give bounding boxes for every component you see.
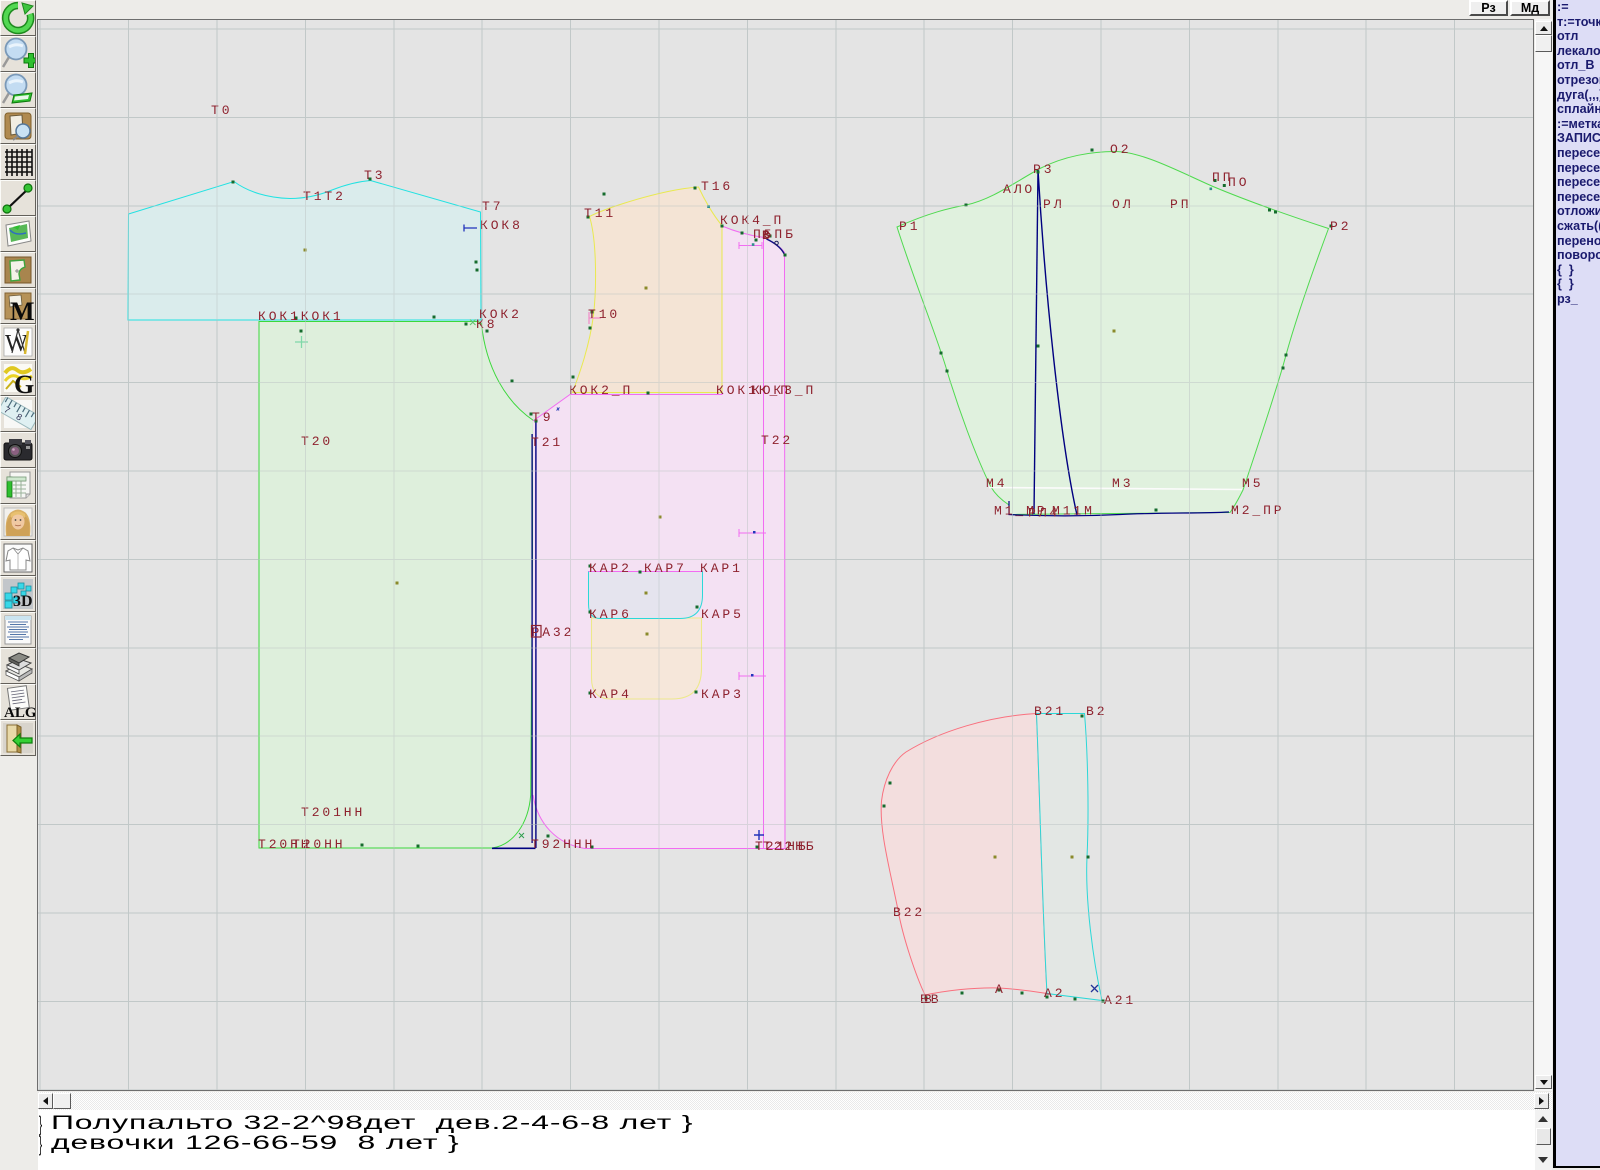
- svg-text:Т201НН: Т201НН: [301, 805, 365, 820]
- svg-text:Т1Т2: Т1Т2: [303, 189, 346, 204]
- svg-text:КАР3: КАР3: [701, 687, 744, 702]
- svg-text:ПО: ПО: [1228, 175, 1249, 190]
- svg-text:3D: 3D: [13, 593, 33, 610]
- svg-text:M: M: [10, 297, 35, 323]
- svg-text:А21: А21: [1104, 993, 1136, 1008]
- svg-text:РА32: РА32: [532, 625, 575, 640]
- svg-text:Р2: Р2: [1330, 219, 1351, 234]
- svg-text:В: В: [762, 228, 773, 243]
- svg-text:Т16: Т16: [701, 179, 733, 194]
- svg-text:Р3: Р3: [1033, 162, 1054, 177]
- svg-text:Т11: Т11: [584, 206, 616, 221]
- svg-text:КОК3_П: КОК3_П: [752, 383, 816, 398]
- svg-text:Т21: Т21: [531, 435, 563, 450]
- svg-text:КАР2: КАР2: [589, 561, 632, 576]
- svg-text:РП: РП: [1170, 197, 1191, 212]
- svg-text:Т92ННН: Т92ННН: [531, 837, 595, 852]
- svg-text:Т7: Т7: [482, 199, 503, 214]
- svg-text:О2: О2: [1110, 142, 1131, 157]
- svg-text:КОК8: КОК8: [480, 218, 523, 233]
- svg-text:П5ПБ: П5ПБ: [753, 227, 796, 242]
- svg-text:М5: М5: [1242, 476, 1263, 491]
- svg-text:А2: А2: [1044, 986, 1065, 1001]
- svg-text:Т22: Т22: [761, 433, 793, 448]
- svg-text:КАР4: КАР4: [589, 687, 632, 702]
- svg-text:КАР5: КАР5: [701, 607, 744, 622]
- svg-text:М3: М3: [1112, 476, 1133, 491]
- svg-text:К8: К8: [476, 317, 497, 332]
- svg-text:В21: В21: [1034, 704, 1066, 719]
- svg-text:КАР7: КАР7: [644, 561, 687, 576]
- svg-text:КОК4_П: КОК4_П: [720, 213, 784, 228]
- svg-text:Т9: Т9: [532, 410, 553, 425]
- svg-text:Т0: Т0: [211, 103, 232, 118]
- svg-text:В2: В2: [1086, 704, 1107, 719]
- svg-text:Р1: Р1: [899, 219, 920, 234]
- svg-text:G: G: [14, 370, 34, 395]
- svg-text:Т3: Т3: [364, 168, 385, 183]
- svg-text:КАР1: КАР1: [700, 561, 743, 576]
- svg-text:В: В: [924, 992, 935, 1007]
- svg-text:Т20НН: Т20НН: [292, 837, 346, 852]
- svg-text:М2_ПР: М2_ПР: [1231, 503, 1285, 518]
- svg-text:ALG: ALG: [4, 705, 35, 719]
- svg-text:М4: М4: [986, 476, 1007, 491]
- svg-text:РЛ: РЛ: [1043, 197, 1064, 212]
- svg-text:КАР6: КАР6: [589, 607, 632, 622]
- svg-text:КОК2_П: КОК2_П: [569, 383, 633, 398]
- svg-text:Т22НБ: Т22НБ: [763, 839, 817, 854]
- svg-text:А: А: [995, 982, 1006, 997]
- svg-text:ОЛ: ОЛ: [1112, 197, 1133, 212]
- svg-text:АЛО: АЛО: [1003, 182, 1035, 197]
- svg-text:М11М: М11М: [1052, 504, 1095, 519]
- svg-text:Т10: Т10: [588, 307, 620, 322]
- svg-text:КОК1КОК1: КОК1КОК1: [258, 309, 344, 324]
